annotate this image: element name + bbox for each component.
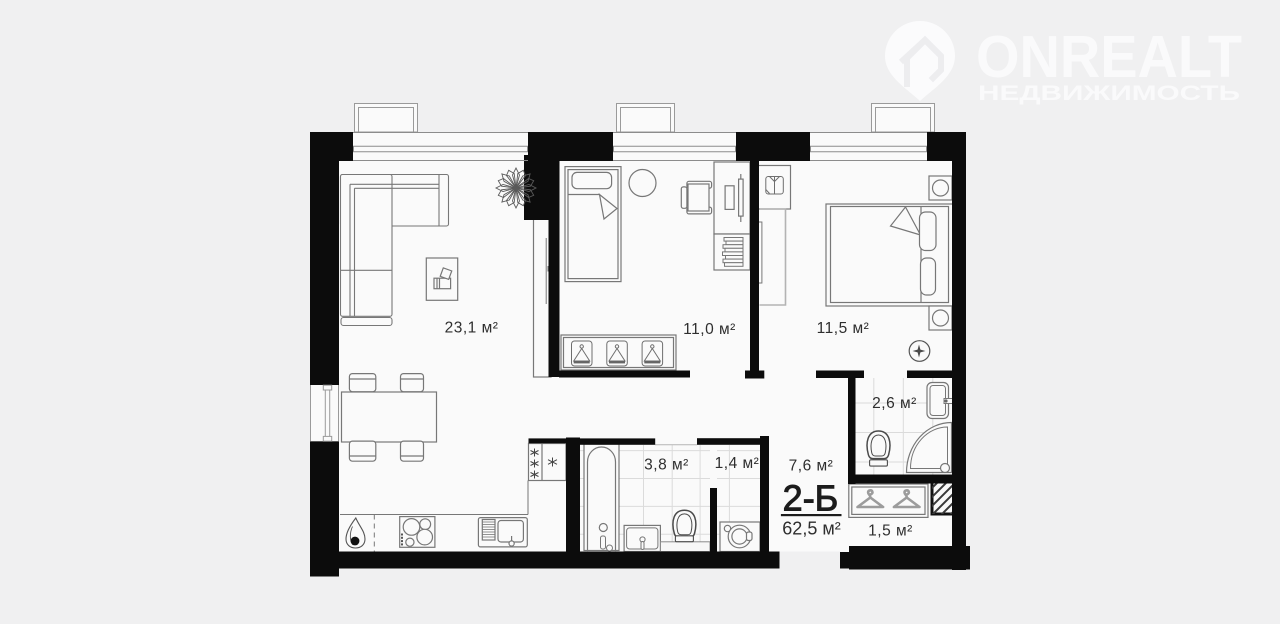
svg-text:ONREALT: ONREALT [976,23,1242,90]
svg-text:1,4 м²: 1,4 м² [715,455,760,472]
svg-text:11,0 м²: 11,0 м² [683,321,736,338]
svg-text:3,8 м²: 3,8 м² [644,457,689,474]
svg-text:11,5 м²: 11,5 м² [817,320,870,337]
svg-text:2-Б: 2-Б [783,478,839,519]
svg-text:2,6 м²: 2,6 м² [872,395,917,412]
svg-text:1,5 м²: 1,5 м² [868,523,913,540]
svg-text:62,5 м²: 62,5 м² [782,519,840,539]
svg-text:23,1 м²: 23,1 м² [445,320,499,337]
svg-text:7,6 м²: 7,6 м² [789,458,834,475]
svg-text:НЕДВИЖИМОСТЬ: НЕДВИЖИМОСТЬ [978,82,1240,105]
